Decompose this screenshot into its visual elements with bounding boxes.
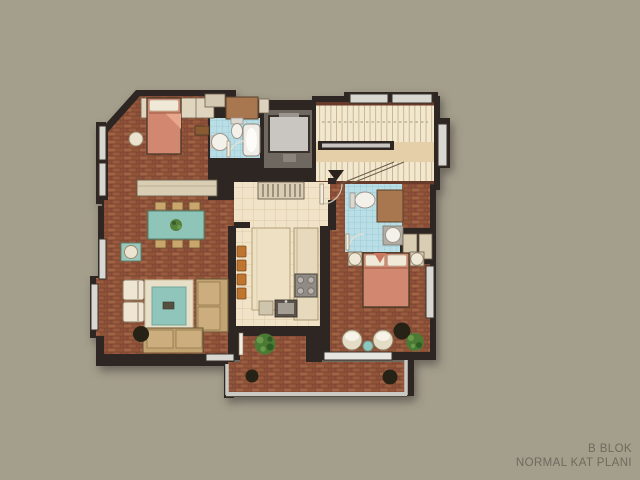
floor-plan-canvas	[0, 0, 640, 480]
side-table-teal	[363, 341, 373, 351]
window-bedroom1-left-b	[99, 163, 106, 196]
bed-double	[363, 253, 409, 307]
elevator-door	[279, 113, 299, 117]
bed-single	[147, 98, 181, 154]
window-stairs-top-a	[350, 94, 388, 103]
door-leaf-balcony	[239, 333, 243, 355]
stove	[295, 274, 317, 297]
coat-closet	[258, 182, 304, 199]
side-table-lamp	[121, 243, 141, 261]
rug-coffee-table	[145, 280, 193, 332]
sofa-l-shaped	[196, 279, 228, 332]
caption-block-name: B BLOK	[392, 442, 632, 456]
window-stairs-top-b	[392, 94, 432, 103]
window-living-left-b	[91, 284, 98, 330]
kitchen-sink	[275, 300, 297, 317]
shower-cabinet-2	[377, 190, 403, 222]
staircase	[316, 102, 434, 185]
dresser-long	[137, 180, 217, 196]
door-leaf-bath1	[227, 141, 230, 157]
dining-set	[147, 202, 205, 248]
door-leaf-bath2	[346, 234, 349, 250]
stair-upper-flight	[316, 104, 434, 142]
plant-passage	[255, 334, 276, 355]
stair-handrail	[318, 141, 394, 150]
door-leaf-entry	[320, 184, 324, 204]
shelf-light	[259, 99, 269, 113]
caption-plan-name: NORMAL KAT PLANI	[392, 456, 632, 470]
bench-small	[195, 126, 209, 135]
window-living-bottom	[206, 354, 234, 361]
window-living-left-a	[99, 239, 106, 279]
shower-cabinet-brown	[226, 97, 258, 119]
window-bedroom2-bottom	[324, 352, 392, 360]
elevator-step	[283, 154, 296, 162]
elevator-car	[269, 116, 309, 152]
plant-bedroom2	[406, 333, 424, 351]
window-bedroom2-right	[426, 266, 434, 318]
floor-lamp-black	[133, 326, 149, 342]
table-plant	[170, 219, 182, 231]
nightstand-left	[348, 252, 362, 266]
window-bedroom1-left-a	[99, 126, 106, 160]
floor-plan-drawing	[0, 0, 640, 480]
floor-plan	[90, 90, 450, 398]
closet-beige-small	[205, 94, 225, 107]
window-stairs-right	[438, 124, 447, 166]
toilet-1-bowl	[232, 124, 243, 139]
balcony	[226, 360, 407, 397]
balcony-table-right	[383, 370, 398, 385]
toilet-2-tank	[350, 193, 355, 208]
sofa-two-seat	[143, 328, 203, 353]
nightstand-right	[410, 252, 424, 266]
wall-pillar	[306, 326, 322, 364]
stool-round	[129, 132, 143, 146]
elevator-shaft	[264, 110, 312, 168]
balcony-table-left	[246, 370, 259, 383]
kitchen-island	[252, 228, 290, 310]
kitchen-cabinet-small	[259, 301, 273, 315]
plan-caption: B BLOK NORMAL KAT PLANI	[392, 442, 632, 470]
toilet-2-bowl	[355, 192, 375, 208]
sink-2	[386, 228, 401, 243]
sink-1	[212, 134, 229, 151]
